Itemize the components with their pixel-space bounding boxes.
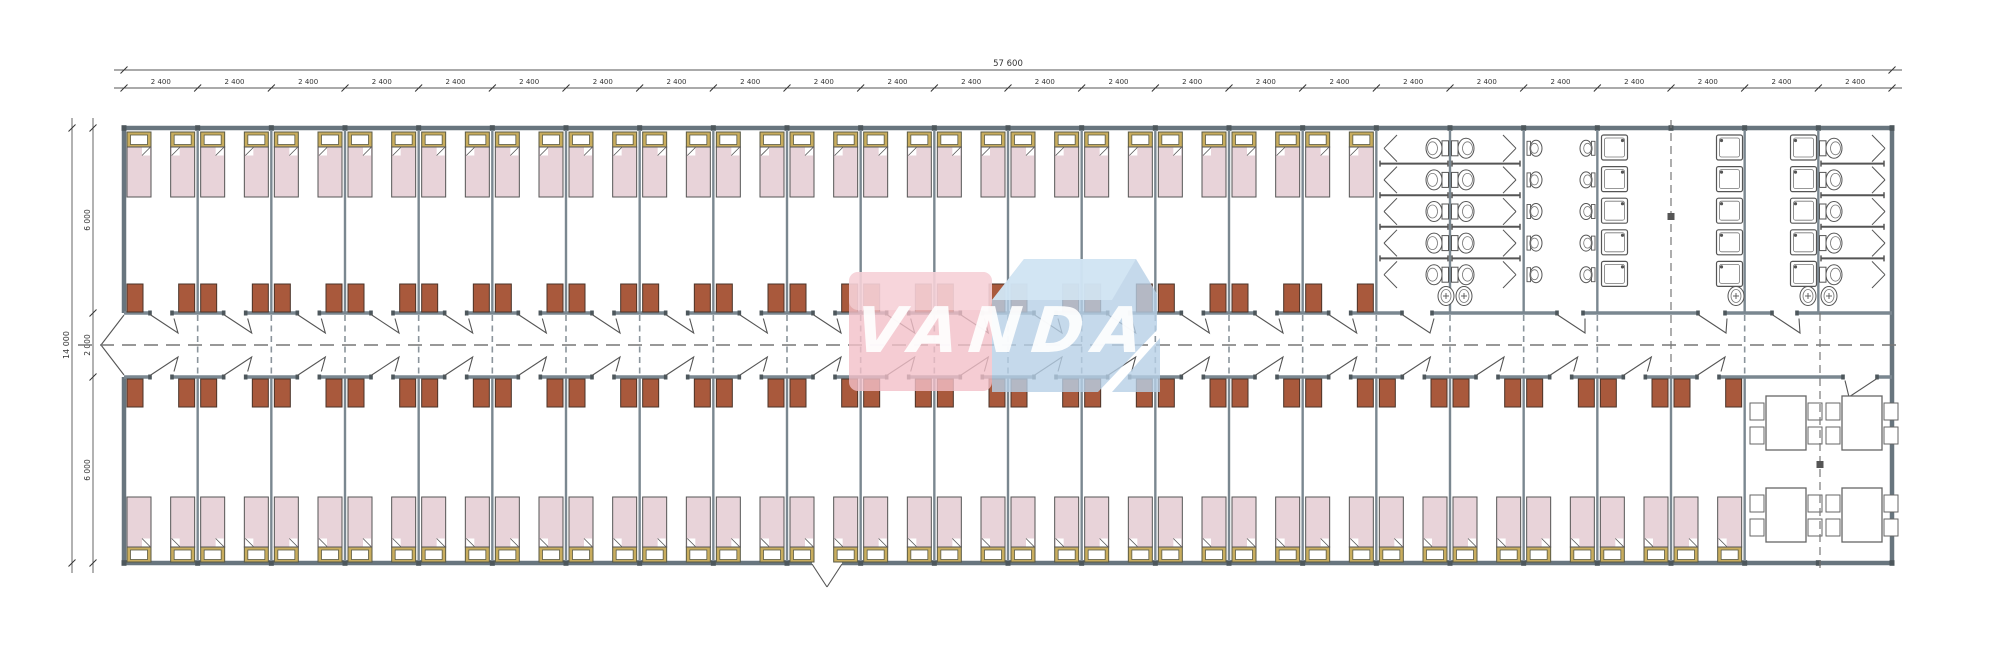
bed-headboard-inner	[1132, 550, 1149, 560]
door-jamb	[1644, 375, 1648, 380]
dining-table-group	[1826, 396, 1898, 450]
bed-icon	[465, 132, 489, 197]
wardrobe	[1210, 379, 1226, 407]
bed-icon	[1718, 497, 1742, 562]
urinal-icon	[1580, 140, 1595, 156]
bed-icon	[127, 132, 151, 197]
wall-joint	[932, 125, 937, 131]
bedroom	[274, 379, 342, 562]
stall-door	[1384, 135, 1397, 148]
shower-drain	[1794, 202, 1797, 205]
toilet-cistern	[1442, 172, 1449, 187]
urinal-icon	[1527, 140, 1542, 156]
bed-headboard-inner	[352, 135, 369, 145]
door-swing	[1476, 357, 1504, 376]
door-jamb	[1570, 375, 1574, 380]
stall-door	[1384, 230, 1397, 243]
bed-headboard-inner	[1206, 550, 1223, 560]
wardrobe	[473, 284, 489, 312]
wall-joint	[785, 125, 790, 131]
bed-headboard-inner	[1530, 550, 1547, 560]
bed-icon	[1497, 497, 1521, 562]
urinal-icon	[1580, 172, 1595, 188]
wall-joint	[343, 125, 348, 131]
bed-headboard-inner	[941, 550, 958, 560]
dim-label-depth-seg: 6 000	[83, 459, 92, 481]
bed-headboard-inner	[1678, 550, 1695, 560]
toilet-bowl-inner	[1831, 173, 1841, 186]
dining-table-group	[1826, 488, 1898, 542]
bed-headboard-inner	[131, 135, 148, 145]
wardrobe	[621, 379, 637, 407]
stall-door	[1872, 135, 1885, 148]
toilet-cistern	[1452, 172, 1459, 187]
door-jamb	[1496, 375, 1500, 380]
shower-drain	[1720, 139, 1723, 142]
bed-icon	[569, 497, 593, 562]
shower-tray-icon	[1717, 167, 1743, 192]
wardrobe	[1431, 379, 1447, 407]
wall-joint	[1521, 560, 1526, 566]
shower-drain	[1794, 171, 1797, 174]
wardrobe	[1158, 284, 1174, 312]
bed-headboard-inner	[174, 135, 191, 145]
bed-headboard-inner	[1279, 550, 1296, 560]
dining-table-group	[1750, 396, 1822, 450]
bedroom	[1674, 379, 1742, 562]
bed-headboard-inner	[837, 550, 854, 560]
dim-label-bay: 2 400	[1845, 78, 1865, 86]
bed-icon	[1527, 497, 1551, 562]
bed-headboard-inner	[174, 550, 191, 560]
bed-headboard-inner	[1309, 135, 1326, 145]
door-jamb	[244, 311, 248, 316]
bedroom	[864, 379, 932, 562]
toilet-icon	[1426, 138, 1449, 158]
door-swing	[1557, 315, 1585, 334]
bed-headboard-inner	[1721, 550, 1738, 560]
bedroom	[1158, 379, 1226, 562]
wall-joint	[1742, 560, 1747, 566]
bed-headboard-inner	[1353, 135, 1370, 145]
bed-icon	[274, 132, 298, 197]
bed-headboard-inner	[1015, 550, 1032, 560]
bed-icon	[495, 497, 519, 562]
chair	[1826, 427, 1840, 444]
wardrobe	[127, 284, 143, 312]
bed-icon	[981, 497, 1005, 562]
wall-joint	[122, 560, 127, 566]
toilet-icon	[1820, 233, 1843, 253]
wardrobe	[790, 379, 806, 407]
bedroom	[1232, 132, 1300, 312]
door-swing	[297, 315, 325, 334]
wardrobe	[495, 379, 511, 407]
door-jamb	[760, 375, 764, 380]
door-swing	[592, 357, 620, 376]
wall-joint	[1448, 560, 1453, 566]
wall-joint	[122, 125, 127, 131]
door-swing	[1550, 357, 1578, 376]
bedroom	[716, 379, 784, 562]
wardrobe	[274, 284, 290, 312]
wardrobe	[422, 284, 438, 312]
wardrobe	[326, 284, 342, 312]
shower-drain	[1621, 202, 1624, 205]
bed-icon	[1306, 132, 1330, 197]
wall-joint	[858, 560, 863, 566]
wardrobe	[1232, 379, 1248, 407]
urinal-bowl-inner	[1531, 270, 1539, 280]
bed-icon	[392, 132, 416, 197]
floor-plan-canvas: 57 6002 4002 4002 4002 4002 4002 4002 40…	[0, 0, 2000, 654]
wall-joint	[195, 560, 200, 566]
bedroom	[274, 132, 342, 312]
shower-drain	[1621, 265, 1624, 268]
shower-drain	[1621, 234, 1624, 237]
wall-joint	[1448, 125, 1453, 131]
dim-label-bay: 2 400	[1624, 78, 1644, 86]
bed-headboard-inner	[204, 550, 221, 560]
bedroom	[1453, 379, 1521, 562]
chair	[1826, 519, 1840, 536]
wardrobe	[569, 379, 585, 407]
bed-headboard-inner	[573, 550, 590, 560]
washbasin-icon	[1438, 287, 1454, 306]
toilet-cistern	[1452, 236, 1459, 251]
door-jamb	[1841, 375, 1845, 380]
bed-icon	[392, 497, 416, 562]
shower-tray-icon	[1791, 198, 1817, 223]
toilet-icon	[1452, 233, 1475, 253]
wall-joint	[1595, 560, 1600, 566]
dining-room	[1750, 313, 1898, 572]
toilet-bowl-inner	[1428, 205, 1438, 218]
bed-headboard-inner	[543, 550, 560, 560]
shower-tray-icon	[1791, 230, 1817, 255]
toilet-icon	[1426, 202, 1449, 222]
wardrobe	[1726, 379, 1742, 407]
door-jamb	[465, 375, 469, 380]
washbasin-icon	[1728, 287, 1744, 306]
shower-tray-icon	[1717, 135, 1743, 160]
wall-joint	[564, 560, 569, 566]
door-swing	[297, 357, 325, 376]
wall-joint	[785, 560, 790, 566]
bed-icon	[760, 132, 784, 197]
bedroom	[1232, 379, 1300, 562]
bed-headboard-inner	[867, 135, 884, 145]
bed-headboard-inner	[248, 135, 265, 145]
stall-door	[1503, 230, 1516, 243]
urinal-icon	[1580, 235, 1595, 251]
wardrobe	[1306, 284, 1322, 312]
shower-tray-icon	[1602, 167, 1628, 192]
vanda-logo: VANDA	[849, 259, 1160, 392]
dim-label-bay: 2 400	[887, 78, 907, 86]
bedroom	[127, 132, 195, 312]
door-swing	[445, 357, 473, 376]
bedroom	[348, 132, 416, 312]
dim-label-bay: 2 400	[445, 78, 465, 86]
stall-door	[1384, 198, 1397, 211]
dim-label-bay: 2 400	[1182, 78, 1202, 86]
urinal-bowl-inner	[1584, 175, 1592, 185]
wall-joint	[1227, 560, 1232, 566]
door-swing	[445, 315, 473, 334]
bed-headboard-inner	[278, 550, 295, 560]
door-jamb	[465, 311, 469, 316]
door-jamb	[539, 375, 543, 380]
wardrobe	[569, 284, 585, 312]
door-jamb	[612, 375, 616, 380]
bed-icon	[422, 132, 446, 197]
door-swing	[1697, 357, 1725, 376]
bed-headboard-inner	[867, 550, 884, 560]
stall-door	[1503, 275, 1516, 288]
bed-headboard-inner	[646, 135, 663, 145]
bed-icon	[1158, 132, 1182, 197]
wall-joint	[269, 560, 274, 566]
wardrobe	[274, 379, 290, 407]
shower-drain	[1794, 234, 1797, 237]
wardrobe	[127, 379, 143, 407]
bed-headboard-inner	[1457, 550, 1474, 560]
wall-joint	[932, 560, 937, 566]
section-marker	[1668, 213, 1675, 220]
sanitary-shower-room	[1602, 120, 1745, 377]
urinal-bowl-inner	[1584, 270, 1592, 280]
bed-headboard-inner	[322, 550, 339, 560]
wall-joint	[1669, 560, 1674, 566]
bed-headboard-inner	[837, 135, 854, 145]
bed-icon	[981, 132, 1005, 197]
bed-headboard-inner	[911, 135, 928, 145]
shower-drain	[1794, 139, 1797, 142]
door-jamb	[1275, 375, 1279, 380]
bed-icon	[348, 497, 372, 562]
chair	[1750, 403, 1764, 420]
toilet-cistern	[1820, 172, 1827, 187]
stall-door	[1384, 167, 1397, 180]
bedroom	[422, 379, 490, 562]
door-jamb	[1349, 375, 1353, 380]
toilet-bowl-inner	[1428, 173, 1438, 186]
wall-joint	[1153, 125, 1158, 131]
bed-icon	[422, 497, 446, 562]
bed-headboard-inner	[499, 135, 516, 145]
dim-label-bay: 2 400	[1698, 78, 1718, 86]
door-jamb	[1723, 311, 1727, 316]
wall-joint	[1374, 125, 1379, 131]
chair	[1826, 403, 1840, 420]
stall-door	[1872, 180, 1885, 193]
stall-door	[1872, 212, 1885, 225]
bed-headboard-inner	[616, 550, 633, 560]
door-swing	[592, 315, 620, 334]
shower-tray-icon	[1602, 230, 1628, 255]
bed-headboard-inner	[395, 135, 412, 145]
door-swing	[739, 315, 767, 334]
stall-door	[1872, 198, 1885, 211]
door-swing	[150, 315, 178, 334]
door-swing	[1329, 357, 1357, 376]
stall-door	[1872, 275, 1885, 288]
toilet-bowl-inner	[1463, 268, 1473, 281]
bed-headboard-inner	[1309, 550, 1326, 560]
stall-door	[1384, 148, 1397, 161]
bedroom	[1527, 379, 1595, 562]
bed-headboard-inner	[499, 550, 516, 560]
wardrobe	[694, 379, 710, 407]
chair	[1884, 403, 1898, 420]
door-swing	[1181, 315, 1209, 334]
wall-joint	[1300, 125, 1305, 131]
toilet-icon	[1820, 202, 1843, 222]
door-swing	[371, 315, 399, 334]
wall-joint	[1890, 560, 1895, 566]
toilet-cistern	[1820, 141, 1827, 156]
bed-headboard-inner	[1162, 135, 1179, 145]
dim-label-bay: 2 400	[151, 78, 171, 86]
door-jamb	[391, 311, 395, 316]
shower-drain	[1621, 139, 1624, 142]
bed-icon	[1306, 497, 1330, 562]
shower-tray-icon	[1791, 135, 1817, 160]
bed-icon	[539, 132, 563, 197]
bedroom	[1306, 132, 1374, 312]
bed-headboard-inner	[764, 550, 781, 560]
wardrobe	[1232, 284, 1248, 312]
wardrobe	[547, 379, 563, 407]
bed-headboard-inner	[1132, 135, 1149, 145]
stall-door	[1384, 243, 1397, 256]
door-swing	[813, 315, 841, 334]
door-jamb	[833, 311, 837, 316]
shower-tray-icon	[1717, 261, 1743, 286]
toilet-cistern	[1442, 236, 1449, 251]
wall-joint	[1227, 125, 1232, 131]
door-swing	[1402, 315, 1434, 334]
wall-joint	[195, 125, 200, 131]
shower-tray-icon	[1791, 167, 1817, 192]
door-swing	[1772, 315, 1800, 334]
bed-icon	[937, 497, 961, 562]
wardrobe	[768, 379, 784, 407]
toilet-bowl-inner	[1463, 173, 1473, 186]
door-swing	[1698, 315, 1727, 334]
wardrobe	[348, 284, 364, 312]
chair	[1884, 427, 1898, 444]
bedroom	[1085, 379, 1153, 562]
wall-joint	[1006, 560, 1011, 566]
wardrobe	[1578, 379, 1594, 407]
bed-icon	[864, 132, 888, 197]
toilet-cistern	[1820, 236, 1827, 251]
wardrobe	[348, 379, 364, 407]
bed-icon	[1055, 132, 1079, 197]
wardrobe	[1527, 379, 1543, 407]
bed-icon	[495, 132, 519, 197]
stall-door	[1872, 148, 1885, 161]
urinal-bowl-inner	[1531, 143, 1539, 153]
toilet-cistern	[1820, 267, 1827, 282]
urinal-bowl-inner	[1584, 207, 1592, 217]
bed-headboard-inner	[352, 550, 369, 560]
door-swing	[739, 357, 767, 376]
bed-headboard-inner	[1236, 550, 1253, 560]
door-swing	[224, 315, 252, 334]
bed-icon	[244, 497, 268, 562]
dim-label-bay: 2 400	[519, 78, 539, 86]
wardrobe	[1306, 379, 1322, 407]
bed-icon	[1011, 497, 1035, 562]
stall-door	[1503, 243, 1516, 256]
bedroom	[937, 379, 1005, 562]
bed-headboard-inner	[764, 135, 781, 145]
toilet-icon	[1426, 170, 1449, 190]
toilet-cistern	[1452, 141, 1459, 156]
door-jamb	[686, 311, 690, 316]
wardrobe	[1600, 379, 1616, 407]
door-jamb	[1423, 375, 1427, 380]
wall-joint	[416, 125, 421, 131]
door-jamb	[170, 375, 174, 380]
bed-icon	[1232, 497, 1256, 562]
toilet-cistern	[1820, 204, 1827, 219]
bed-headboard-inner	[1353, 550, 1370, 560]
stall-door	[1384, 275, 1397, 288]
bed-icon	[1349, 497, 1373, 562]
stall-door	[1503, 135, 1516, 148]
stall-door	[1872, 230, 1885, 243]
dim-label-bay: 2 400	[1403, 78, 1423, 86]
bed-icon	[834, 497, 858, 562]
dim-label-bay: 2 400	[1108, 78, 1128, 86]
door-jamb	[539, 311, 543, 316]
bed-headboard-inner	[1162, 550, 1179, 560]
urinal-icon	[1580, 267, 1595, 283]
bed-icon	[834, 132, 858, 197]
urinal-bowl-inner	[1531, 207, 1539, 217]
dim-label-bay: 2 400	[740, 78, 760, 86]
toilet-cistern	[1442, 204, 1449, 219]
bedroom	[716, 132, 784, 312]
bed-icon	[643, 497, 667, 562]
urinal-bowl-inner	[1531, 238, 1539, 248]
wall-joint	[1595, 125, 1600, 131]
toilet-icon	[1820, 170, 1843, 190]
wardrobe	[400, 284, 416, 312]
chair	[1884, 519, 1898, 536]
bedroom	[1306, 379, 1374, 562]
floor-plan: 57 6002 4002 4002 4002 4002 4002 4002 40…	[0, 0, 2000, 654]
door-jamb	[1795, 311, 1799, 316]
bed-headboard-inner	[469, 550, 486, 560]
bed-icon	[569, 132, 593, 197]
door-jamb	[1349, 311, 1353, 316]
stall-door	[1503, 261, 1516, 274]
bed-headboard-inner	[1088, 135, 1105, 145]
bed-icon	[1128, 132, 1152, 197]
bed-headboard-inner	[1574, 550, 1591, 560]
bed-icon	[1600, 497, 1624, 562]
wall-joint	[1300, 560, 1305, 566]
bedroom	[643, 132, 711, 312]
wall-joint	[637, 560, 642, 566]
stall-door	[1503, 148, 1516, 161]
bed-icon	[1674, 497, 1698, 562]
